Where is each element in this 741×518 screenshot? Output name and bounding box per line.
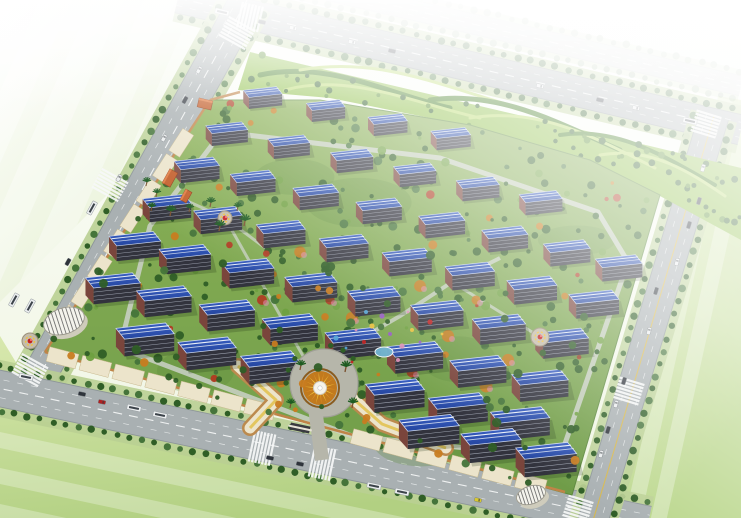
masterplan-scene [0, 0, 741, 518]
atmospheric-haze-overlay [0, 0, 741, 518]
aerial-masterplan-rendering [0, 0, 741, 518]
